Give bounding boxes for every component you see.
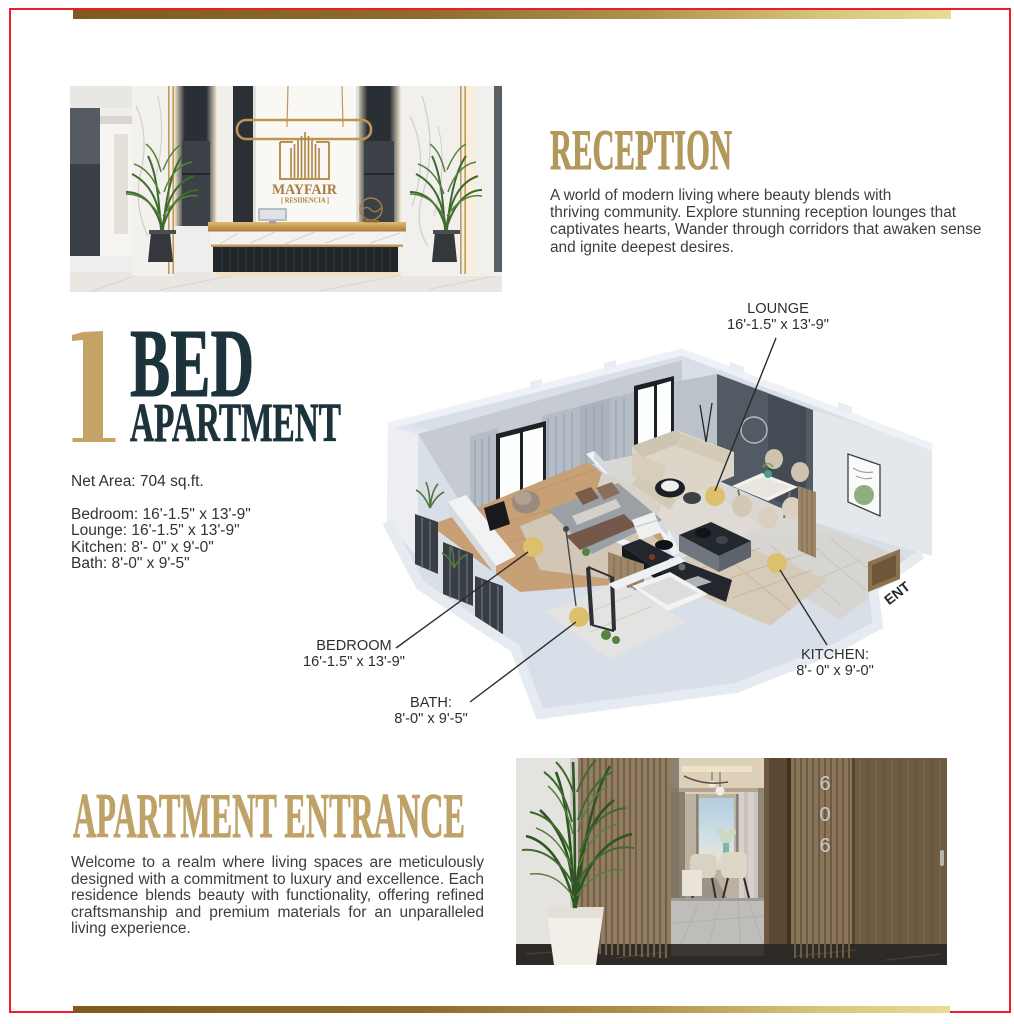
svg-text:0: 0 — [819, 804, 830, 826]
svg-text:[ RESIDENCIA ]: [ RESIDENCIA ] — [281, 197, 329, 205]
svg-text:6: 6 — [819, 773, 830, 795]
svg-text:APARTMENT: APARTMENT — [130, 392, 341, 450]
svg-text:6: 6 — [819, 835, 830, 857]
svg-text:APARTMENT ENTRANCE: APARTMENT ENTRANCE — [73, 788, 465, 848]
svg-text:RECEPTION: RECEPTION — [550, 125, 732, 180]
